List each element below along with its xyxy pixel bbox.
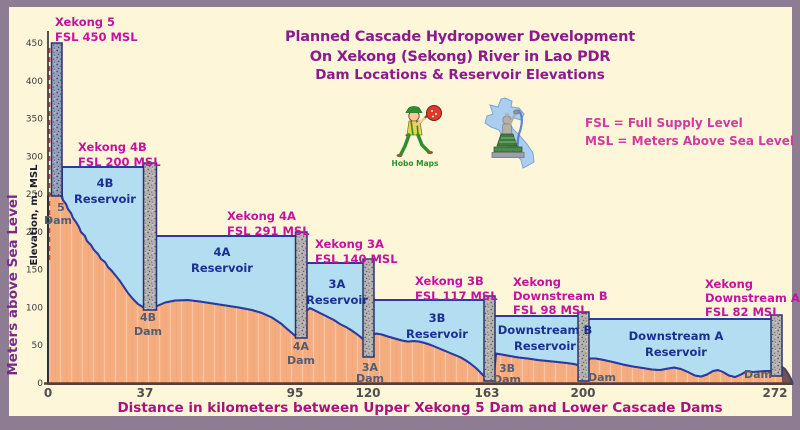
label-3a-reservoir-2: Reservoir [306,293,368,307]
legend-msl-definition: MSL = Meters Above Sea Level [585,134,794,148]
bindle-dot [435,113,437,115]
label-4b-reservoir-1: 4B [97,176,114,190]
label-dsa-name2: Downstream A [705,291,800,305]
chart-canvas: 450 400 350 300 250 200 150 100 50 0 0 3… [0,0,800,430]
label-dam4b-1: 4B [140,311,156,324]
label-dsb-reservoir-1: Downstream B [498,323,593,337]
x-tick-label: 200 [570,386,595,400]
statue-topknot [505,113,509,117]
dam-xekong5-column [52,43,63,196]
statue-torso [502,124,512,134]
chart-title: Planned Cascade Hydropower Development O… [285,29,635,83]
y-tick-label: 50 [32,341,44,351]
label-xekong3a-name: Xekong 3A [315,237,384,251]
statue-skirt [497,134,517,146]
dam-4b-column [144,163,157,310]
label-xekong4b-name: Xekong 4B [78,140,147,154]
bindle-dot [432,116,434,118]
x-tick-label: 272 [762,386,787,400]
label-dam3a-2: Dam [356,372,384,385]
y-tick-label: 150 [26,266,43,276]
label-xekong3b-fsl: FSL 117 MSL [415,289,498,303]
cascade-profile-figure: 450 400 350 300 250 200 150 100 50 0 0 3… [0,0,800,430]
x-tick-label: 95 [287,386,304,400]
label-dam5-2: Dam [44,214,72,227]
label-xekong3b-name: Xekong 3B [415,274,484,288]
x-tick-label: 0 [44,386,52,400]
label-xekong3a-fsl: FSL 140 MSL [315,252,398,266]
label-dam3b-2: Dam [493,373,521,386]
label-dam5-1: 5 [57,201,65,214]
label-4a-reservoir-1: 4A [214,245,231,259]
chart-title-line2: On Xekong (Sekong) River in Lao PDR [310,49,611,65]
statue-base-lower [492,153,524,158]
label-3b-reservoir-2: Reservoir [406,327,468,341]
y-tick-label: 300 [26,152,43,162]
label-dam4b-2: Dam [134,325,162,338]
hobo-foot [397,154,403,157]
label-dsb-name2: Downstream B [513,289,608,303]
x-tick-label: 120 [355,386,380,400]
label-dam-dsb: Dam [588,371,616,384]
label-3a-reservoir-1: 3A [329,277,346,291]
label-dsa-reservoir-2: Reservoir [645,345,707,359]
y-tick-label: 0 [37,379,43,389]
dam-4a-column [296,232,308,338]
bindle-dot [431,110,433,112]
legend-fsl-definition: FSL = Full Supply Level [585,116,743,130]
dam-3b-column [484,296,495,381]
label-4b-reservoir-2: Reservoir [74,192,136,206]
x-axis-title: Distance in kilometers between Upper Xek… [117,400,722,416]
x-tick-label: 163 [474,386,499,400]
label-xekong5-fsl: FSL 450 MSL [55,30,138,44]
label-dsa-fsl: FSL 82 MSL [705,305,780,319]
label-dam4a-1: 4A [293,340,310,353]
chart-title-line3: Dam Locations & Reservoir Elevations [315,67,605,83]
dam-dsa-column [771,315,782,376]
label-dsa-name1: Xekong [705,277,753,291]
dam-3a-column [363,259,374,357]
label-xekong5-name: Xekong 5 [55,15,115,29]
label-xekong4a-fsl: FSL 291 MSL [227,224,310,238]
label-xekong4b-fsl: FSL 200 MSL [78,155,161,169]
label-dam-dsa: Dam [744,368,772,381]
chart-title-line1: Planned Cascade Hydropower Development [285,29,635,45]
y-axis-title-outer: Meters above Sea Level [5,194,21,375]
label-dsa-reservoir-1: Downstream A [629,329,724,343]
hobo-bindle-bag [427,106,442,121]
hobo-maps-wordmark: Hobo Maps [392,159,439,168]
y-tick-label: 400 [26,77,43,87]
label-xekong4a-name: Xekong 4A [227,209,296,223]
label-4a-reservoir-2: Reservoir [191,261,253,275]
label-dam4a-2: Dam [287,354,315,367]
y-tick-label: 350 [26,115,43,125]
statue-base-upper [494,147,522,152]
y-tick-label: 100 [26,303,43,313]
label-dsb-fsl: FSL 98 MSL [513,303,588,317]
label-dsb-reservoir-2: Reservoir [514,339,576,353]
hobo-foot [427,151,433,154]
label-3b-reservoir-1: 3B [429,311,446,325]
y-tick-label: 450 [26,39,43,49]
label-dsb-name1: Xekong [513,275,561,289]
x-tick-label: 37 [137,386,154,400]
statue-vessel [514,110,520,114]
y-axis-title-inner: Elevation, m. MSL [29,164,40,266]
